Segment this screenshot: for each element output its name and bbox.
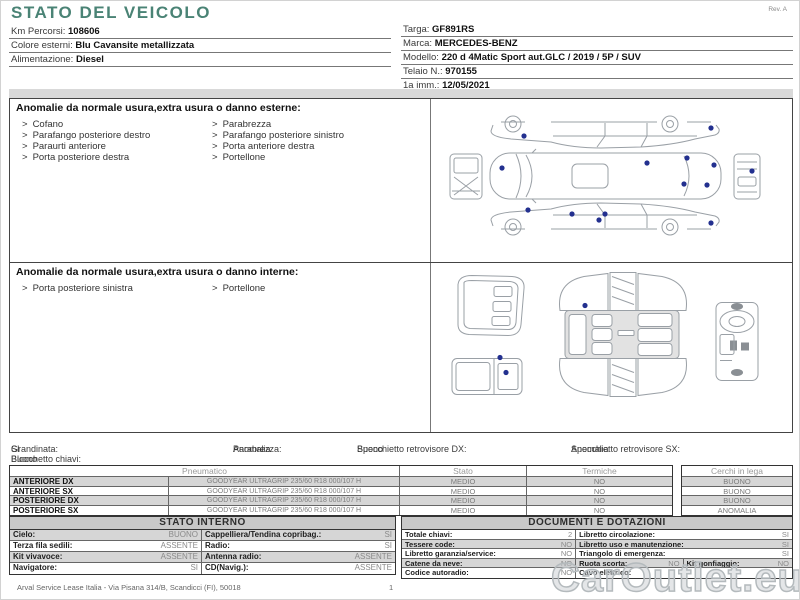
damage-dot <box>681 181 686 186</box>
info-label: Colore esterni: <box>11 40 73 51</box>
tyre-spec: GOODYEAR ULTRAGRIP 235/60 R18 000/107 H <box>169 496 400 506</box>
summary-value: Buono <box>11 454 37 464</box>
table-cell: Catene da neve:NO <box>402 559 576 568</box>
damage-dot <box>602 211 607 216</box>
cell-value: NO <box>778 559 789 568</box>
table-row: Libretto garanzia/service:NO Triangolo d… <box>402 549 792 559</box>
damage-dot <box>525 207 530 212</box>
cell-value: 2 <box>568 530 572 539</box>
info-value: MERCEDES-BENZ <box>435 38 518 49</box>
front-view <box>734 154 760 199</box>
cell-label: Radio: <box>205 541 230 551</box>
cell-label: Terza fila sedili: <box>13 541 72 551</box>
anomaly-item-label: Cofano <box>33 119 64 130</box>
anomaly-item-label: Parabrezza <box>223 119 272 130</box>
exterior-anomaly-list-left: >Cofano >Parafango posteriore destro >Pa… <box>22 119 150 163</box>
stato-interno-table: STATO INTERNO Cielo:BUONO Cappelliera/Te… <box>9 516 396 575</box>
cell-value: NO <box>561 559 572 568</box>
table-cell: Libretto garanzia/service:NO <box>402 549 576 558</box>
cell-label: Kit gonfiaggio: <box>687 559 740 568</box>
table-cell: Navigatore:SI <box>10 563 202 574</box>
vehicle-info-right: Targa: GF891RS Marca: MERCEDES-BENZ Mode… <box>401 23 793 93</box>
info-row-targa: Targa: GF891RS <box>401 23 793 37</box>
anomaly-item-label: Parafango posteriore destro <box>33 130 151 141</box>
exterior-anomalies-section: Anomalie da normale usura,extra usura o … <box>9 98 793 263</box>
table-cell: Kit gonfiaggio:NO <box>684 559 792 568</box>
damage-dot <box>711 162 716 167</box>
tyre-spec: GOODYEAR ULTRAGRIP 235/60 R18 000/107 H <box>169 477 400 487</box>
list-marker: > <box>212 152 218 163</box>
column-header-stato: Stato <box>400 466 527 477</box>
list-marker: > <box>22 141 28 152</box>
tyre-stato: MEDIO <box>400 506 527 516</box>
damage-dot <box>644 160 649 165</box>
table-cell: Radio:SI <box>202 541 395 551</box>
list-marker: > <box>22 119 28 130</box>
anomaly-item: >Portellone <box>212 283 265 294</box>
cell-value: SI <box>190 563 198 574</box>
exterior-car-diagram <box>432 99 794 262</box>
tyre-stato: MEDIO <box>400 477 527 487</box>
anomaly-item-label: Portellone <box>223 152 266 163</box>
list-marker: > <box>22 152 28 163</box>
cell-label: Catene da neve: <box>405 559 463 568</box>
info-label: Km Percorsi: <box>11 26 65 37</box>
list-marker: > <box>212 283 218 294</box>
info-row-modello: Modello: 220 d 4Matic Sport aut.GLC / 20… <box>401 51 793 65</box>
anomaly-item: >Parafango posteriore destro <box>22 130 150 141</box>
list-marker: > <box>22 283 28 294</box>
anomaly-item-label: Parafango posteriore sinistro <box>223 130 344 141</box>
cell-value: BUONO <box>169 530 198 540</box>
table-cell: Kit vivavoce:ASSENTE <box>10 552 202 562</box>
page-title: STATO DEL VEICOLO <box>11 3 211 23</box>
list-marker: > <box>212 130 218 141</box>
damage-dot <box>684 155 689 160</box>
anomaly-item-label: Porta anteriore destra <box>223 141 315 152</box>
documenti-table: DOCUMENTI E DOTAZIONI Totale chiavi:2 Li… <box>401 516 793 579</box>
tyre-position: POSTERIORE DX <box>10 496 169 506</box>
info-row-marca: Marca: MERCEDES-BENZ <box>401 37 793 51</box>
tyre-spec: GOODYEAR ULTRAGRIP 235/60 R18 000/107 H <box>169 487 400 497</box>
rim-condition: BUONO <box>682 477 792 487</box>
cell-label: CD(Navig.): <box>205 563 249 574</box>
info-row-colore: Colore esterni: Blu Cavansite metallizza… <box>9 39 391 53</box>
table-row: Navigatore:SI CD(Navig.):ASSENTE <box>10 563 395 574</box>
table-cell: CD(Navig.):ASSENTE <box>202 563 395 574</box>
table-row: Terza fila sedili:ASSENTE Radio:SI <box>10 541 395 552</box>
rim-condition: BUONO <box>682 487 792 497</box>
cell-value: NO <box>561 568 572 578</box>
cell-label: Triangolo di emergenza: <box>579 549 665 558</box>
column-header-termiche: Termiche <box>527 466 672 477</box>
cell-value: SI <box>782 540 789 549</box>
anomaly-item: >Parabrezza <box>212 119 344 130</box>
table-cell: Codice autoradio:NO <box>402 568 576 578</box>
table-cell: Tessere code:NO <box>402 540 576 549</box>
cell-label: Kit vivavoce: <box>13 552 62 562</box>
summary-value: Anomalia <box>233 444 271 454</box>
table-row: Catene da neve:NO Ruota scorta:NO Kit go… <box>402 559 792 569</box>
table-cell: Ruota scorta:NO <box>576 559 683 568</box>
stato-interno-header: STATO INTERNO <box>10 517 395 530</box>
revision-label: Rev. A <box>768 6 787 13</box>
cell-value: NO <box>561 540 572 549</box>
list-marker: > <box>212 119 218 130</box>
table-cell: Terza fila sedili:ASSENTE <box>10 541 202 551</box>
tyre-table: Pneumatico Stato Termiche ANTERIORE DX G… <box>9 465 673 516</box>
info-value: GF891RS <box>432 24 474 35</box>
interior-anomaly-list-right: >Portellone <box>212 283 265 294</box>
list-marker: > <box>22 130 28 141</box>
section-vertical-divider <box>430 99 431 262</box>
info-row-alimentazione: Alimentazione: Diesel <box>9 53 391 67</box>
documenti-header: DOCUMENTI E DOTAZIONI <box>402 517 792 530</box>
info-label: Marca: <box>403 38 432 49</box>
cell-label: Ruota scorta: <box>579 559 627 568</box>
tyre-termiche: NO <box>527 477 672 487</box>
rim-condition: BUONO <box>682 496 792 506</box>
table-row: Tessere code:NO Libretto uso e manutenzi… <box>402 540 792 550</box>
table-cell: Cielo:BUONO <box>10 530 202 540</box>
anomaly-item: >Porta posteriore sinistra <box>22 283 133 294</box>
cell-label: Antenna radio: <box>205 552 261 562</box>
headliner-view <box>458 276 524 336</box>
summary-value: Anomalia <box>571 444 609 454</box>
tailgate-view <box>452 359 522 395</box>
table-row: Totale chiavi:2 Libretto circolazione:SI <box>402 530 792 540</box>
cell-value: ASSENTE <box>355 552 392 562</box>
info-label: Modello: <box>403 52 439 63</box>
anomaly-item: >Paraurti anteriore <box>22 141 150 152</box>
table-cell: Totale chiavi:2 <box>402 530 576 539</box>
info-row-telaio: Telaio N.: 970155 <box>401 65 793 79</box>
tyre-position: POSTERIORE SX <box>10 506 169 516</box>
column-header-pneumatico: Pneumatico <box>10 466 400 477</box>
cell-label: Libretto uso e manutenzione: <box>579 540 684 549</box>
table-cell: Triangolo di emergenza:SI <box>576 549 792 558</box>
cell-value: ASSENTE <box>355 563 392 574</box>
page-number: 1 <box>389 583 393 592</box>
cell-label: Cielo: <box>13 530 35 540</box>
table-row: Codice autoradio:NO Cavo elettrico: <box>402 568 792 578</box>
tyre-termiche: NO <box>527 506 672 516</box>
tyre-stato: MEDIO <box>400 487 527 497</box>
damage-dot <box>497 355 502 360</box>
cell-label: Libretto garanzia/service: <box>405 549 496 558</box>
info-label: Alimentazione: <box>11 54 73 65</box>
cell-value: ASSENTE <box>161 552 198 562</box>
cell-label: Totale chiavi: <box>405 530 452 539</box>
column-header-cerchi: Cerchi in lega <box>682 466 792 477</box>
anomaly-item-label: Paraurti anteriore <box>33 141 106 152</box>
damage-dots <box>499 125 754 225</box>
cell-value: SI <box>384 541 392 551</box>
tyre-position: ANTERIORE SX <box>10 487 169 497</box>
exterior-anomalies-title: Anomalie da normale usura,extra usura o … <box>16 102 301 114</box>
info-value: 220 d 4Matic Sport aut.GLC / 2019 / 5P /… <box>442 52 641 63</box>
cell-label: Codice autoradio: <box>405 568 469 578</box>
tyre-position: ANTERIORE DX <box>10 477 169 487</box>
cell-label: Libretto circolazione: <box>579 530 655 539</box>
cell-value: SI <box>782 549 789 558</box>
damage-dot <box>749 168 754 173</box>
info-value: 970155 <box>445 66 477 77</box>
cell-label: Tessere code: <box>405 540 455 549</box>
damage-dot <box>596 217 601 222</box>
vehicle-status-report: STATO DEL VEICOLO Rev. A Km Percorsi: 10… <box>0 0 800 600</box>
rim-condition: ANOMALIA <box>682 506 792 516</box>
cell-value: NO <box>561 549 572 558</box>
cell-value: ASSENTE <box>161 541 198 551</box>
section-vertical-divider <box>430 263 431 432</box>
cell-label: Navigatore: <box>13 563 57 574</box>
anomaly-item: >Porta anteriore destra <box>212 141 344 152</box>
anomaly-item-label: Porta posteriore destra <box>33 152 130 163</box>
summary-value: Buono <box>357 444 383 454</box>
anomaly-item-label: Portellone <box>223 283 266 294</box>
table-row: Cielo:BUONO Cappelliera/Tendina copribag… <box>10 530 395 541</box>
damage-dot <box>704 182 709 187</box>
damage-dot <box>569 211 574 216</box>
cell-value: NO <box>668 559 679 568</box>
damage-dot <box>582 303 587 308</box>
table-cell: Cappelliera/Tendina copribag.:SI <box>202 530 395 540</box>
interior-anomalies-section: Anomalie da normale usura,extra usura o … <box>9 263 793 433</box>
vehicle-info-left: Km Percorsi: 108606 Colore esterni: Blu … <box>9 25 391 67</box>
anomaly-item: >Portellone <box>212 152 344 163</box>
interior-car-diagram <box>432 263 794 426</box>
table-row: Kit vivavoce:ASSENTE Antenna radio:ASSEN… <box>10 552 395 563</box>
anomaly-item: >Cofano <box>22 119 150 130</box>
cell-label: Cappelliera/Tendina copribag.: <box>205 530 321 540</box>
anomaly-item-label: Porta posteriore sinistra <box>33 283 133 294</box>
rims-table: Cerchi in lega BUONO BUONO BUONO ANOMALI… <box>681 465 793 516</box>
damage-dot <box>708 125 713 130</box>
cabin-view <box>560 273 687 397</box>
cell-value: SI <box>384 530 392 540</box>
cell-label: Cavo elettrico: <box>579 568 631 578</box>
damage-dot <box>708 220 713 225</box>
table-cell: Libretto uso e manutenzione:SI <box>576 540 792 549</box>
tyre-stato: MEDIO <box>400 496 527 506</box>
summary-value: SI <box>11 444 20 454</box>
exterior-anomaly-list-right: >Parabrezza >Parafango posteriore sinist… <box>212 119 344 163</box>
anomaly-item: >Porta posteriore destra <box>22 152 150 163</box>
section-separator-bar <box>9 89 793 98</box>
interior-anomalies-title: Anomalie da normale usura,extra usura o … <box>16 266 298 278</box>
info-label: Targa: <box>403 24 429 35</box>
damage-dot <box>503 370 508 375</box>
info-value: Diesel <box>76 54 104 65</box>
dashboard-view <box>716 303 758 381</box>
table-cell: Cavo elettrico: <box>576 568 792 578</box>
tyre-spec: GOODYEAR ULTRAGRIP 235/60 R18 000/107 H <box>169 506 400 516</box>
tyre-termiche: NO <box>527 496 672 506</box>
table-cell: Libretto circolazione:SI <box>576 530 792 539</box>
table-cell: Antenna radio:ASSENTE <box>202 552 395 562</box>
rear-view <box>450 154 482 199</box>
damage-dot <box>521 133 526 138</box>
info-label: Telaio N.: <box>403 66 443 77</box>
condition-summary: Grandinata: SI Parabrezza: Anomalia Spec… <box>9 444 793 464</box>
footer-company: Arval Service Lease Italia - Via Pisana … <box>17 583 241 592</box>
info-value: Blu Cavansite metallizzata <box>75 40 194 51</box>
interior-anomaly-list-left: >Porta posteriore sinistra <box>22 283 133 294</box>
tyre-termiche: NO <box>527 487 672 497</box>
info-row-km: Km Percorsi: 108606 <box>9 25 391 39</box>
info-value: 108606 <box>68 26 100 37</box>
anomaly-item: >Parafango posteriore sinistro <box>212 130 344 141</box>
list-marker: > <box>212 141 218 152</box>
cell-value: SI <box>782 530 789 539</box>
damage-dot <box>499 165 504 170</box>
